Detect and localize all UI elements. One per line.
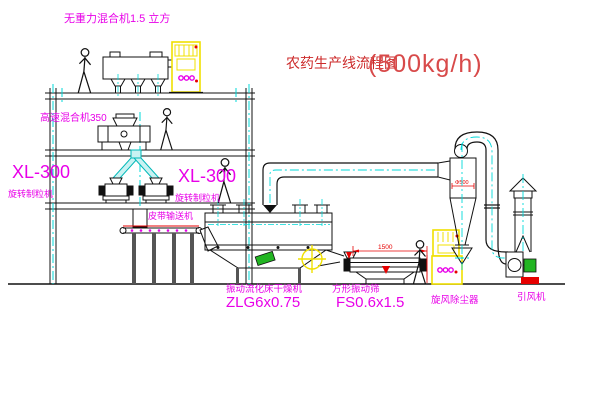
cad-drawing-canvas: 农药生产线流程图 (500kg/h)	[0, 0, 600, 403]
rotary-valve	[255, 251, 275, 265]
induced-draft-fan	[506, 252, 539, 284]
label-screen-model: FS0.6x1.5	[336, 294, 404, 311]
label-fan: 引风机	[517, 291, 546, 303]
granulator-left	[99, 178, 133, 203]
label-granulator-right: 旋转制粒机	[175, 192, 220, 203]
label-cyclone: 旋风除尘器	[431, 294, 479, 306]
y-chute	[113, 150, 159, 178]
target-symbol	[298, 245, 326, 273]
person-figure-2	[161, 109, 173, 150]
exhaust-pipe-centerline	[270, 170, 438, 203]
screen-dimension-text: 1500	[378, 244, 393, 251]
label-high-speed-mixer: 高速混合机350	[40, 111, 107, 124]
label-gravity-mixer: 无重力混合机1.5 立方	[64, 11, 170, 25]
belt-conveyor	[120, 226, 202, 284]
discharge-duct	[133, 209, 147, 227]
fluid-bed-dryer	[205, 205, 344, 284]
label-dryer-model: ZLG6x0.75	[226, 294, 300, 311]
label-granulator-left: 旋转制粒机	[8, 188, 53, 199]
exhaust-pipe	[263, 163, 438, 213]
granulator-right	[139, 178, 173, 203]
control-cabinet-1	[169, 42, 203, 93]
label-xl300-left: XL-300	[12, 162, 70, 182]
person-figure-1	[78, 49, 90, 93]
dryer-feed-chute	[200, 227, 218, 251]
drawing-title-capacity: (500kg/h)	[368, 50, 483, 78]
label-belt-conveyor: 皮带输送机	[148, 210, 193, 221]
label-xl300-right: XL-300	[178, 166, 236, 186]
